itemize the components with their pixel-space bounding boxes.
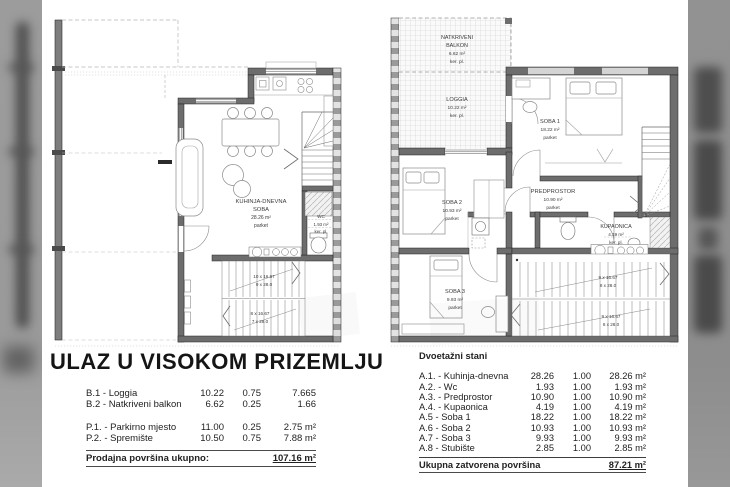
- blur-artifact: [8, 246, 34, 253]
- bedroom1-furniture: [512, 78, 622, 163]
- room-label: SOBA 2: [442, 200, 462, 206]
- row-value: 2.85 m²: [591, 443, 646, 453]
- row-label: A.2. - Wc: [419, 382, 513, 392]
- table-row: A.5 - Soba 1 18.22 1.00 18.22 m²: [419, 412, 646, 422]
- row-coef: 1.00: [554, 423, 591, 433]
- row-label: B.2 - Natkriveni balkon: [86, 399, 183, 410]
- table-spacer: [86, 411, 316, 422]
- room-floor: ker. pl.: [609, 240, 623, 245]
- room-label: KUPAONICA: [600, 224, 632, 230]
- room-floor: ker. pl.: [315, 229, 328, 234]
- room-label: PREDPROSTOR: [531, 189, 576, 195]
- chair: [523, 102, 537, 113]
- page-title: ULAZ U VISOKOM PRIZEMLJU: [50, 349, 366, 375]
- row-area: 28.26: [513, 371, 554, 381]
- blurred-right-band: [688, 0, 730, 487]
- blur-artifact: [694, 140, 722, 220]
- room-floor: ker. pl.: [450, 113, 464, 119]
- party-wall: [391, 18, 399, 342]
- row-coef: 1.00: [554, 443, 591, 453]
- room-floor: parket: [543, 135, 557, 141]
- row-coef: 0.25: [224, 422, 261, 433]
- room-label: KUHINJA-DNEVNA: [236, 199, 287, 205]
- total-value: 87.21 m²: [591, 460, 646, 470]
- row-value: 1.93 m²: [591, 382, 646, 392]
- row-area: 1.93: [513, 382, 554, 392]
- row-area: 6.62: [183, 399, 224, 410]
- room-label: NATKRIVENI: [441, 35, 473, 41]
- total-row: Ukupna zatvorena površina 87.21 m²: [419, 457, 646, 473]
- row-label: A.4. - Kupaonica: [419, 402, 513, 412]
- stair-label: 8 x 16.67: [251, 311, 270, 316]
- stair-label: 7 x 28.0: [252, 319, 269, 324]
- room-area: 6.62 m²: [449, 51, 466, 57]
- stair-label: 9 x 16.67: [602, 314, 621, 319]
- blurred-left-band: [0, 0, 42, 487]
- room-area: 1.93 m²: [314, 222, 329, 227]
- row-value: 7.88 m²: [261, 433, 316, 444]
- row-coef: 1.00: [554, 412, 591, 422]
- row-value: 10.93 m²: [591, 423, 646, 433]
- row-value: 7.665: [261, 388, 316, 399]
- room-label: SOBA 3: [445, 289, 465, 295]
- room-area: 9.93 m²: [447, 297, 464, 303]
- room-area: 10.93 m²: [443, 208, 462, 214]
- room-area: 10.22 m²: [448, 105, 467, 111]
- room-area: 4.19 m²: [608, 232, 624, 237]
- blur-artifact: [694, 255, 722, 333]
- toilet: [311, 237, 326, 253]
- table-row: P.2. - Spremište 10.50 0.75 7.88 m²: [86, 433, 316, 444]
- table-row: A.8 - Stubište 2.85 1.00 2.85 m²: [419, 443, 646, 453]
- room-floor: parket: [445, 216, 459, 222]
- row-value: 18.22 m²: [591, 412, 646, 422]
- floorplan-sheet: KUHINJA-DNEVNA SOBA 28.26 m² parket WC 1…: [0, 0, 730, 487]
- row-value: 28.26 m²: [591, 371, 646, 381]
- row-coef: 1.00: [554, 433, 591, 443]
- row-area: 11.00: [183, 422, 224, 433]
- ground-floor-plan: KUHINJA-DNEVNA SOBA 28.26 m² parket WC 1…: [42, 0, 362, 350]
- room-floor: parket: [254, 223, 269, 229]
- dining-table: [222, 108, 279, 157]
- row-coef: 1.00: [554, 371, 591, 381]
- stair-label: 9 x 28.0: [256, 282, 273, 287]
- row-value: 4.19 m²: [591, 402, 646, 412]
- row-coef: 1.00: [554, 392, 591, 402]
- stair-label: 8 x 28.0: [603, 322, 620, 327]
- row-area: 9.93: [513, 433, 554, 443]
- row-area: 10.22: [183, 388, 224, 399]
- row-value: 9.93 m²: [591, 433, 646, 443]
- table-row: P.1. - Parkirno mjesto 11.00 0.25 2.75 m…: [86, 422, 316, 433]
- row-label: P.1. - Parkirno mjesto: [86, 422, 183, 433]
- shower: [650, 217, 670, 248]
- row-value: 10.90 m²: [591, 392, 646, 402]
- row-value: 1.66: [261, 399, 316, 410]
- stair-label: 8 x 28.0: [600, 283, 617, 288]
- room-area: 28.26 m²: [251, 215, 271, 221]
- stairwell: [222, 261, 305, 336]
- blur-artifact: [8, 148, 34, 155]
- row-area: 18.22: [513, 412, 554, 422]
- room-label: LOGGIA: [446, 97, 468, 103]
- room-floor: ker. pl.: [450, 59, 464, 65]
- table-row: A.1. - Kuhinja-dnevna 28.26 1.00 28.26 m…: [419, 371, 646, 381]
- stair-label: 10 x 16.67: [253, 274, 275, 279]
- room-area: 18.22 m²: [541, 127, 560, 133]
- blur-artifact: [3, 346, 34, 373]
- watermark-artifact: [429, 296, 542, 346]
- room-floor: parket: [546, 205, 560, 211]
- boundary-wall: [52, 20, 65, 340]
- table-header: Dvoetažni stani: [419, 351, 646, 361]
- room-area: 10.90 m²: [544, 197, 563, 203]
- blur-artifact: [8, 64, 34, 71]
- table-row: B.2 - Natkriveni balkon 6.62 0.25 1.66: [86, 399, 316, 410]
- row-area: 4.19: [513, 402, 554, 412]
- table-row: B.1 - Loggia 10.22 0.75 7.665: [86, 388, 316, 399]
- blur-artifact: [698, 227, 718, 250]
- row-label: P.2. - Spremište: [86, 433, 183, 444]
- row-coef: 1.00: [554, 382, 591, 392]
- table-row: A.4. - Kupaonica 4.19 1.00 4.19 m²: [419, 402, 646, 412]
- table-row: A.3. - Predprostor 10.90 1.00 10.90 m²: [419, 392, 646, 402]
- row-label: A.6 - Soba 2: [419, 423, 513, 433]
- apartment-area-table: Dvoetažni stani A.1. - Kuhinja-dnevna 28…: [419, 351, 646, 473]
- room-label: SOBA 1: [540, 119, 560, 125]
- room-label: BALKON: [446, 43, 468, 49]
- row-coef: 0.75: [224, 433, 261, 444]
- row-value: 2.75 m²: [261, 422, 316, 433]
- row-label: A.3. - Predprostor: [419, 392, 513, 402]
- table-row: A.2. - Wc 1.93 1.00 1.93 m²: [419, 382, 646, 392]
- tv: [597, 149, 613, 162]
- watermark-artifact: [298, 292, 360, 340]
- row-coef: 0.75: [224, 388, 261, 399]
- upper-floor-plan: NATKRIVENI BALKON 6.62 m² ker. pl. LOGGI…: [380, 0, 688, 350]
- plants: [223, 165, 251, 198]
- row-coef: 1.00: [554, 402, 591, 412]
- total-label: Prodajna površina ukupno:: [86, 453, 261, 464]
- entrance-door: [184, 226, 209, 251]
- row-area: 10.90: [513, 392, 554, 402]
- shower: [305, 192, 332, 216]
- storage-shelves: [185, 280, 191, 324]
- staircase-up: [630, 127, 670, 218]
- room-floor: parket: [448, 305, 462, 311]
- row-label: A.1. - Kuhinja-dnevna: [419, 371, 513, 381]
- row-label: A.5 - Soba 1: [419, 412, 513, 422]
- ground-floor-area-table: B.1 - Loggia 10.22 0.75 7.665 B.2 - Natk…: [86, 388, 316, 467]
- stair-label: 9 x 16.67: [599, 275, 618, 280]
- row-coef: 0.25: [224, 399, 261, 410]
- table-row: A.6 - Soba 2 10.93 1.00 10.93 m²: [419, 423, 646, 433]
- washbasin-row: [249, 247, 301, 257]
- row-label: B.1 - Loggia: [86, 388, 183, 399]
- total-value: 107.16 m²: [261, 453, 316, 464]
- sofa: [176, 139, 203, 216]
- room-label: WC: [317, 214, 325, 219]
- row-area: 10.93: [513, 423, 554, 433]
- room-label: SOBA: [253, 207, 269, 213]
- total-row: Prodajna površina ukupno: 107.16 m²: [86, 450, 316, 467]
- toilet: [561, 223, 575, 240]
- total-label: Ukupna zatvorena površina: [419, 460, 591, 470]
- row-label: A.7 - Soba 3: [419, 433, 513, 443]
- row-area: 10.50: [183, 433, 224, 444]
- table-row: A.7 - Soba 3 9.93 1.00 9.93 m²: [419, 433, 646, 443]
- blur-artifact: [694, 67, 722, 133]
- row-label: A.8 - Stubište: [419, 443, 513, 453]
- row-area: 2.85: [513, 443, 554, 453]
